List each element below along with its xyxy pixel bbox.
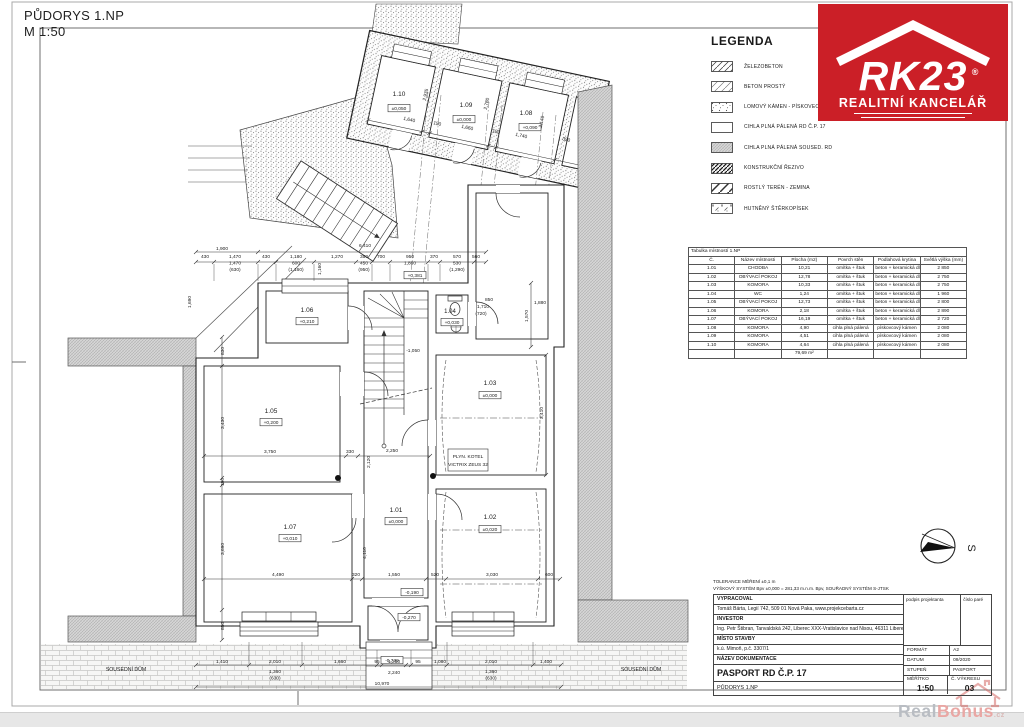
legend-swatch	[711, 203, 733, 214]
nazev-dokumentace-value: PASPORT RD Č.P. 17	[714, 665, 903, 682]
plan-annotation: 95	[374, 659, 380, 665]
vypracoval-value: Tomáš Bárta, Legií 742, 509 01 Nová Paka…	[714, 605, 903, 615]
plan-annotation: PLYN. KOTEL	[453, 454, 484, 460]
table-title-row: Tabulka místností 1.NP	[689, 248, 967, 257]
table-cell: 2,18	[781, 307, 827, 316]
format-value: A2	[950, 646, 962, 655]
plan-annotation: 370	[430, 254, 438, 260]
svg-text:700: 700	[377, 254, 385, 260]
table-cell: beton + keramická dlažba	[874, 273, 920, 282]
table-row: 1.02OBÝVACÍ POKOJ12,78omítka + štukbeton…	[689, 273, 967, 282]
svg-text:1,360: 1,360	[269, 669, 281, 675]
svg-text:450: 450	[360, 261, 368, 267]
plan-annotation: ±0,000	[453, 115, 475, 123]
table-cell: pískovcový kámen	[874, 324, 920, 333]
plan-annotation: -1,050	[406, 348, 420, 354]
legend-swatch	[711, 102, 733, 113]
svg-text:1,210: 1,210	[388, 659, 400, 665]
plan-annotation: 1.10	[393, 91, 406, 98]
svg-text:VICTRIX ZEUS 32: VICTRIX ZEUS 32	[448, 462, 488, 468]
svg-text:10,970: 10,970	[375, 681, 390, 687]
investor-value: Ing. Petr Štibran, Tanvaldská 242, Liber…	[714, 625, 903, 635]
svg-text:520: 520	[431, 572, 439, 578]
plan-annotation: 330	[346, 449, 354, 455]
legend-item-label: HUTNĚNÝ ŠTĚRKOPÍSEK	[744, 206, 809, 212]
svg-text:3,750: 3,750	[264, 449, 276, 455]
svg-text:2,120: 2,120	[366, 456, 372, 468]
cislo-pare-cell: číslo paré	[961, 595, 985, 645]
svg-text:(630): (630)	[485, 676, 497, 682]
plan-annotation: 3,430	[220, 417, 226, 429]
plan-annotation: 1,180	[290, 254, 302, 260]
svg-text:1.01: 1.01	[390, 507, 403, 514]
table-cell: 1,24	[781, 290, 827, 299]
table-cell: omítka + štuk	[827, 299, 873, 308]
plan-annotation: VICTRIX ZEUS 32	[448, 462, 488, 468]
table-cell: 1.06	[689, 307, 735, 316]
svg-text:1,360: 1,360	[485, 669, 497, 675]
plan-annotation: ±0,020	[479, 525, 501, 533]
plan-annotation: 350	[360, 254, 368, 260]
plan-annotation: 450	[360, 261, 368, 267]
watermark-suffix: .cz	[994, 712, 1005, 719]
plan-annotation: 1.02	[484, 514, 497, 521]
plan-annotation: ±0,000	[385, 517, 407, 525]
svg-text:1,410: 1,410	[216, 659, 228, 665]
plan-annotation: 1,550	[388, 572, 400, 578]
legend-item-label: ŽELEZOBETON	[744, 64, 783, 70]
tolerance-note-1: TOLERANCE MĚŘENÍ ±0,1 m	[713, 578, 990, 585]
svg-text:±0,020: ±0,020	[483, 527, 498, 533]
svg-text:+0,030: +0,030	[445, 320, 460, 326]
svg-text:+0,200: +0,200	[264, 420, 279, 426]
table-cell: 2 080	[920, 324, 966, 333]
svg-text:+0,381: +0,381	[408, 273, 423, 279]
plan-annotation: 1,570	[524, 310, 530, 322]
plan-annotation: (720)	[475, 311, 487, 317]
table-row: 1.09KOMORA4,51cihla plná pálenápískovcov…	[689, 333, 967, 342]
table-cell: 12,78	[781, 273, 827, 282]
plan-annotation: +0,010	[279, 534, 301, 542]
rk23-logo: RK23® REALITNÍ KANCELÁŘ	[818, 4, 1008, 121]
legend-item: HUTNĚNÝ ŠTĚRKOPÍSEK	[711, 203, 809, 214]
table-column-header: Světlá výška (mm)	[920, 256, 966, 265]
plan-annotation: 1,210	[388, 659, 400, 665]
table-cell: KOMORA	[735, 307, 781, 316]
table-cell: omítka + štuk	[827, 316, 873, 325]
svg-text:1.02: 1.02	[484, 514, 497, 521]
table-cell: pískovcový kámen	[874, 341, 920, 350]
svg-text:±0,000: ±0,000	[389, 519, 404, 525]
plan-annotation: 1.09	[460, 102, 473, 109]
plan-annotation: 1.05	[265, 408, 278, 415]
legend-swatch	[711, 142, 733, 153]
plan-annotation: 1.07	[284, 524, 297, 531]
table-header-row: Č.Název místnostiPlocha (m2)Povrch stěnP…	[689, 256, 967, 265]
table-cell: OBÝVACÍ POKOJ	[735, 299, 781, 308]
plan-annotation: 1,470	[229, 254, 241, 260]
svg-text:1.06: 1.06	[301, 307, 314, 314]
table-cell: 1.07	[689, 316, 735, 325]
plan-annotation: 1.03	[484, 380, 497, 387]
plan-annotation: 1,900	[216, 246, 228, 252]
stupen-label: STUPEŇ	[904, 666, 950, 675]
table-cell: 1.01	[689, 265, 735, 274]
plan-annotation: 1.08	[520, 110, 533, 117]
title-block-grid: VYPRACOVAL Tomáš Bárta, Legií 742, 509 0…	[713, 594, 992, 696]
datum-value: 09/2020	[950, 656, 973, 665]
legend-item: CIHLA PLNÁ PÁLENÁ RD Č.P. 17	[711, 122, 826, 133]
table-column-header: Název místnosti	[735, 256, 781, 265]
svg-text:530: 530	[453, 261, 461, 267]
legend-item: BETON PROSTÝ	[711, 81, 785, 92]
logo-underline	[854, 113, 972, 115]
svg-text:4,490: 4,490	[272, 572, 284, 578]
table-cell: omítka + štuk	[827, 290, 873, 299]
svg-text:1,880: 1,880	[534, 300, 546, 306]
plan-annotation: 3,690	[220, 543, 226, 555]
table-cell: cihla plná pálená	[827, 324, 873, 333]
plan-annotation: (1,290)	[449, 267, 465, 273]
plan-annotation: 600	[545, 572, 553, 578]
plan-annotation: 2,250	[386, 448, 398, 454]
table-row: 1.01CHODBA10,21omítka + štukbeton + kera…	[689, 265, 967, 274]
svg-text:1.08: 1.08	[520, 110, 533, 117]
plan-annotation: 3,750	[264, 449, 276, 455]
plan-annotation: 2,010	[269, 659, 281, 665]
plan-annotation: 4,490	[272, 572, 284, 578]
vypracoval-label: VYPRACOVAL	[714, 595, 903, 605]
legend-item-label: CIHLA PLNÁ PÁLENÁ RD Č.P. 17	[744, 124, 826, 130]
table-column-header: Podlahová krytina	[874, 256, 920, 265]
table-cell: 4,51	[781, 333, 827, 342]
plan-annotation: 1,710	[477, 304, 489, 310]
plan-annotation: -0,270	[398, 613, 420, 621]
table-column-header: Povrch stěn	[827, 256, 873, 265]
svg-text:±0,000: ±0,000	[483, 393, 498, 399]
legend-item: ŽELEZOBETON	[711, 61, 783, 72]
plan-annotation: 1,660	[334, 659, 346, 665]
plan-annotation: (630)	[229, 267, 241, 273]
table-column-header: Č.	[689, 256, 735, 265]
svg-text:(630): (630)	[269, 676, 281, 682]
table-cell: cihla plná pálená	[827, 333, 873, 342]
drawing-scale: M 1:50	[24, 24, 124, 40]
title-block: TOLERANCE MĚŘENÍ ±0,1 m VÝŠKOVÝ SYSTÉM B…	[713, 578, 990, 696]
plan-annotation: 830	[220, 347, 226, 355]
watermark-part1: Real	[898, 701, 937, 721]
table-title: Tabulka místností 1.NP	[689, 248, 967, 257]
svg-text:6,410: 6,410	[359, 243, 371, 249]
compass-label: S	[965, 544, 977, 551]
table-cell: OBÝVACÍ POKOJ	[735, 316, 781, 325]
svg-text:-1,050: -1,050	[406, 348, 420, 354]
plan-annotation: (630)	[485, 676, 497, 682]
legend-item: CIHLA PLNÁ PÁLENÁ SOUSED. RD	[711, 142, 832, 153]
plan-annotation: 1,470	[229, 261, 241, 267]
svg-text:830: 830	[220, 347, 226, 355]
stupen-value: PASPORT	[950, 666, 978, 675]
plan-annotation: 1,360	[269, 669, 281, 675]
svg-text:1,550: 1,550	[388, 572, 400, 578]
svg-text:1.07: 1.07	[284, 524, 297, 531]
svg-text:95: 95	[415, 659, 421, 665]
svg-text:570: 570	[453, 254, 461, 260]
legend-swatch	[711, 122, 733, 133]
svg-text:1.05: 1.05	[265, 408, 278, 415]
plan-annotation: 700	[377, 254, 385, 260]
logo-brand: RK23®	[859, 58, 968, 94]
plan-annotation: 1,880	[534, 300, 546, 306]
plan-annotation: +0,381	[404, 271, 426, 279]
svg-text:±0,000: ±0,000	[457, 117, 472, 123]
tolerance-note-2: VÝŠKOVÝ SYSTÉM Bpv ±0,000 = 281,33 m.n.m…	[713, 585, 990, 592]
svg-text:350: 350	[360, 254, 368, 260]
svg-text:(950): (950)	[358, 267, 370, 273]
plan-annotation: 950	[406, 254, 414, 260]
realbonus-watermark: RealBonus.cz	[898, 701, 1005, 722]
vykres-value: 03	[951, 683, 988, 693]
svg-text:430: 430	[262, 254, 270, 260]
svg-text:SOUSEDNÍ DŮM: SOUSEDNÍ DŮM	[621, 666, 661, 673]
table-column-header: Plocha (m2)	[781, 256, 827, 265]
plan-annotation: 430	[201, 254, 209, 260]
legend-swatch	[711, 81, 733, 92]
svg-text:2,010: 2,010	[485, 659, 497, 665]
table-cell: 2 890	[920, 307, 966, 316]
svg-text:1,270: 1,270	[331, 254, 343, 260]
logo-subtitle: REALITNÍ KANCELÁŘ	[839, 96, 987, 110]
table-cell: 1.08	[689, 324, 735, 333]
svg-text:3,410: 3,410	[539, 407, 545, 419]
table-cell: omítka + štuk	[827, 273, 873, 282]
legend-item-label: BETON PROSTÝ	[744, 84, 785, 90]
table-row: 1.07OBÝVACÍ POKOJ16,19omítka + štukbeton…	[689, 316, 967, 325]
plan-annotation: 1,160	[317, 263, 323, 275]
svg-text:1,180: 1,180	[290, 254, 302, 260]
legend-swatch	[711, 163, 733, 174]
drawing-title-line1: PŮDORYS 1.NP	[24, 8, 124, 24]
misto-stavby-label: MÍSTO STAVBY	[714, 635, 903, 645]
svg-text:4,110: 4,110	[362, 547, 368, 559]
table-cell: 2 720	[920, 316, 966, 325]
legend-swatch	[711, 183, 733, 194]
plan-annotation: -0,190	[401, 588, 423, 596]
table-cell: 1.03	[689, 282, 735, 291]
svg-text:600: 600	[292, 261, 300, 267]
svg-text:190: 190	[220, 478, 226, 486]
table-cell: 10,33	[781, 282, 827, 291]
svg-text:430: 430	[201, 254, 209, 260]
table-row: 1.06KOMORA2,18omítka + štukbeton + keram…	[689, 307, 967, 316]
plan-annotation: 10,970	[375, 681, 390, 687]
svg-text:1,160: 1,160	[317, 263, 323, 275]
legend-item: LOMOVÝ KÁMEN - PÍSKOVEC	[711, 102, 819, 113]
table-cell: beton + keramická dlažba	[874, 290, 920, 299]
plan-annotation: 2,240	[388, 670, 400, 676]
table-row: 1.03KOMORA10,33omítka + štukbeton + kera…	[689, 282, 967, 291]
svg-text:1.09: 1.09	[460, 102, 473, 109]
svg-text:(720): (720)	[475, 311, 487, 317]
svg-text:2,240: 2,240	[388, 670, 400, 676]
table-cell: 12,73	[781, 299, 827, 308]
plan-annotation: (950)	[358, 267, 370, 273]
plan-annotation: (630)	[269, 676, 281, 682]
svg-text:(1,290): (1,290)	[449, 267, 465, 273]
investor-label: INVESTOR	[714, 615, 903, 625]
svg-text:560: 560	[472, 254, 480, 260]
table-cell: KOMORA	[735, 333, 781, 342]
plan-annotation: 520	[431, 572, 439, 578]
logo-underline	[861, 117, 965, 119]
plan-annotation: 6,410	[359, 243, 371, 249]
plan-annotation: 600	[292, 261, 300, 267]
plan-annotation: +0,030	[441, 318, 463, 326]
svg-text:950: 950	[406, 254, 414, 260]
legend-swatch	[711, 61, 733, 72]
plan-annotation: 570	[453, 254, 461, 260]
table-cell: omítka + štuk	[827, 282, 873, 291]
table-row: 1.10KOMORA4,64cihla plná pálenápískovcov…	[689, 341, 967, 350]
datum-label: DATUM	[904, 656, 950, 665]
svg-text:1,710: 1,710	[477, 304, 489, 310]
svg-text:1.03: 1.03	[484, 380, 497, 387]
svg-text:-0,270: -0,270	[402, 615, 416, 621]
table-total: 79,69 m²	[781, 350, 827, 359]
misto-stavby-value: k.ú. Mimoň, p.č. 3307/1	[714, 645, 903, 655]
svg-text:1,080: 1,080	[434, 659, 446, 665]
plan-annotation: 1,410	[216, 659, 228, 665]
table-cell: 1.09	[689, 333, 735, 342]
table-cell: 1.02	[689, 273, 735, 282]
plan-annotation: ±0,000	[479, 391, 501, 399]
table-cell: KOMORA	[735, 324, 781, 333]
svg-text:PLYN. KOTEL: PLYN. KOTEL	[453, 454, 484, 460]
svg-text:3,430: 3,430	[220, 417, 226, 429]
plan-annotation: ±0,050	[388, 104, 410, 112]
svg-text:3,690: 3,690	[220, 543, 226, 555]
svg-text:1,570: 1,570	[524, 310, 530, 322]
plan-annotation: 850	[485, 297, 493, 303]
legend-item-label: ROSTLÝ TERÉN - ZEMINA	[744, 185, 810, 191]
plan-annotation: 1,400	[540, 659, 552, 665]
table-cell: cihla plná pálená	[827, 341, 873, 350]
page-bottom-strip	[0, 712, 1024, 727]
plan-annotation: SOUSEDNÍ DŮM	[621, 666, 661, 673]
svg-text:850: 850	[220, 622, 226, 630]
plan-annotation: 3,030	[486, 572, 498, 578]
svg-text:1,900: 1,900	[216, 246, 228, 252]
table-cell: OBÝVACÍ POKOJ	[735, 273, 781, 282]
plan-annotation: 1,690	[187, 296, 193, 308]
plan-annotation: +0,210	[296, 317, 318, 325]
table-total-row: 79,69 m²	[689, 350, 967, 359]
svg-text:+0,010: +0,010	[283, 536, 298, 542]
svg-text:SOUSEDNÍ DŮM: SOUSEDNÍ DŮM	[106, 666, 146, 673]
svg-text:±0,050: ±0,050	[392, 106, 407, 112]
plan-annotation: 4,110	[362, 547, 368, 559]
svg-text:3,030: 3,030	[486, 572, 498, 578]
room-table: Tabulka místností 1.NPČ.Název místnostiP…	[688, 247, 967, 359]
table-cell: 1.10	[689, 341, 735, 350]
svg-text:1,470: 1,470	[229, 261, 241, 267]
table-cell: CHODBA	[735, 265, 781, 274]
table-cell: beton + keramická dlažba	[874, 282, 920, 291]
plan-annotation: 1.01	[390, 507, 403, 514]
legend-item-label: KONSTRUKČNÍ ŘEZIVO	[744, 165, 804, 171]
table-cell: 4,90	[781, 324, 827, 333]
table-cell: beton + keramická dlažba	[874, 299, 920, 308]
table-cell: 4,64	[781, 341, 827, 350]
table-cell: WC	[735, 290, 781, 299]
plan-annotation: 850	[220, 622, 226, 630]
svg-text:600: 600	[545, 572, 553, 578]
meritko-value: 1:50	[907, 683, 944, 693]
table-cell: beton + keramická dlažba	[874, 265, 920, 274]
plan-annotation: +0,200	[260, 418, 282, 426]
table-cell: omítka + štuk	[827, 265, 873, 274]
legend-item: KONSTRUKČNÍ ŘEZIVO	[711, 163, 804, 174]
plan-annotation: 1.04	[444, 309, 456, 315]
plan-annotation: +0,090	[519, 123, 541, 131]
table-cell: 2 850	[920, 265, 966, 274]
podpis-projektanta-cell: podpis projektanta	[904, 595, 961, 645]
table-cell: pískovcový kámen	[874, 333, 920, 342]
plan-annotation: 530	[453, 261, 461, 267]
legend-item-label: LOMOVÝ KÁMEN - PÍSKOVEC	[744, 104, 819, 110]
drawing-name: PŮDORYS 1.NP	[714, 682, 903, 695]
plan-annotation: SOUSEDNÍ DŮM	[106, 666, 146, 673]
svg-text:320: 320	[352, 572, 360, 578]
svg-text:+0,090: +0,090	[523, 125, 538, 131]
plan-annotation: 320	[352, 572, 360, 578]
plan-annotation: 1,270	[331, 254, 343, 260]
watermark-part2: Bonus	[937, 701, 994, 721]
svg-text:1,470: 1,470	[229, 254, 241, 260]
plan-annotation: 2,010	[485, 659, 497, 665]
plan-annotation: 190	[220, 478, 226, 486]
plan-annotation: 430	[262, 254, 270, 260]
registered-mark: ®	[972, 54, 980, 90]
nazev-dokumentace-label: NÁZEV DOKUMENTACE	[714, 655, 903, 665]
table-cell: 2 750	[920, 282, 966, 291]
svg-text:1,400: 1,400	[540, 659, 552, 665]
svg-text:(630): (630)	[229, 267, 241, 273]
plan-annotation: 1,080	[434, 659, 446, 665]
table-cell: beton + keramická dlažba	[874, 307, 920, 316]
svg-text:2,250: 2,250	[386, 448, 398, 454]
legend-item: ROSTLÝ TERÉN - ZEMINA	[711, 183, 810, 194]
svg-text:330: 330	[346, 449, 354, 455]
table-cell: 2 080	[920, 333, 966, 342]
svg-text:+0,210: +0,210	[300, 319, 315, 325]
svg-text:370: 370	[430, 254, 438, 260]
plan-annotation: 95	[415, 659, 421, 665]
svg-text:2,010: 2,010	[269, 659, 281, 665]
svg-text:-0,190: -0,190	[405, 590, 419, 596]
drawing-title: PŮDORYS 1.NP M 1:50	[24, 8, 124, 40]
svg-text:850: 850	[485, 297, 493, 303]
table-cell: 16,19	[781, 316, 827, 325]
plan-annotation: 3,410	[539, 407, 545, 419]
table-cell: 1.05	[689, 299, 735, 308]
svg-text:(1,160): (1,160)	[288, 267, 304, 273]
table-cell: 10,21	[781, 265, 827, 274]
table-cell: 2 750	[920, 273, 966, 282]
plan-annotation: 1,860	[404, 261, 416, 267]
svg-text:1,860: 1,860	[404, 261, 416, 267]
svg-text:1.10: 1.10	[393, 91, 406, 98]
